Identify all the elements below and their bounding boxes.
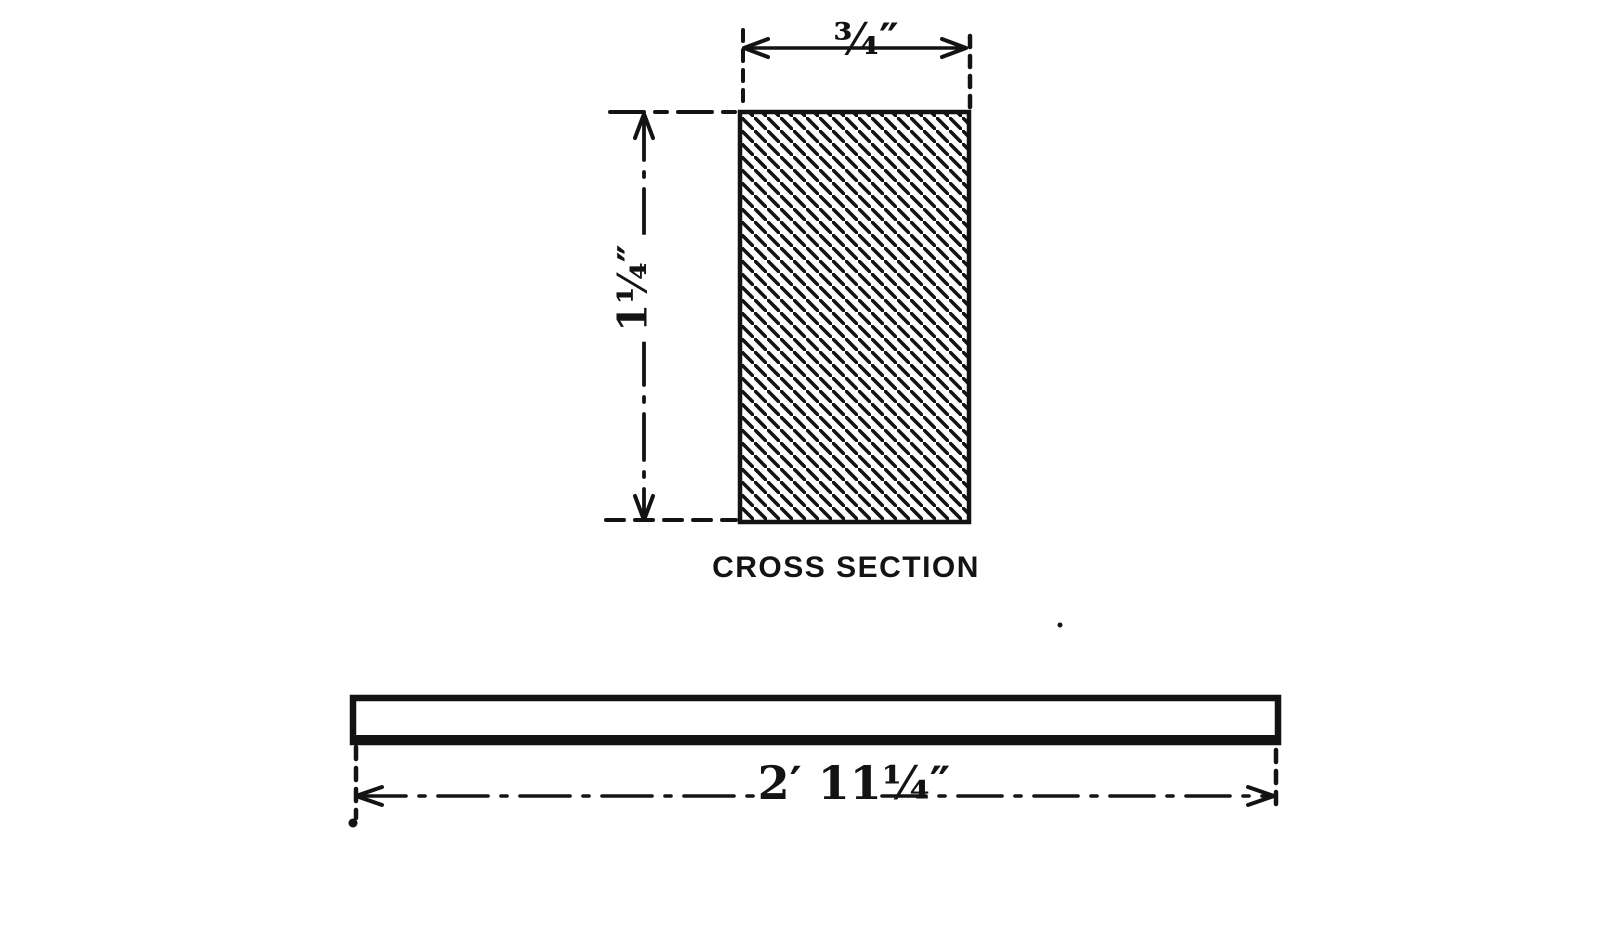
width-dimension-label: ¾″ — [833, 15, 899, 66]
ink-speck — [1058, 623, 1063, 628]
drawing-page: ¾″ 1¼″ CROSS SECTION 2′ 11¼″ — [0, 0, 1606, 935]
cross-section-figure — [606, 30, 970, 522]
ink-speck — [349, 819, 358, 828]
cross-section-caption: CROSS SECTION — [712, 551, 980, 585]
length-dimension-label: 2′ 11¼″ — [758, 756, 951, 810]
hatched-section-rect — [740, 112, 969, 522]
height-dimension-label: 1¼″ — [610, 234, 657, 341]
